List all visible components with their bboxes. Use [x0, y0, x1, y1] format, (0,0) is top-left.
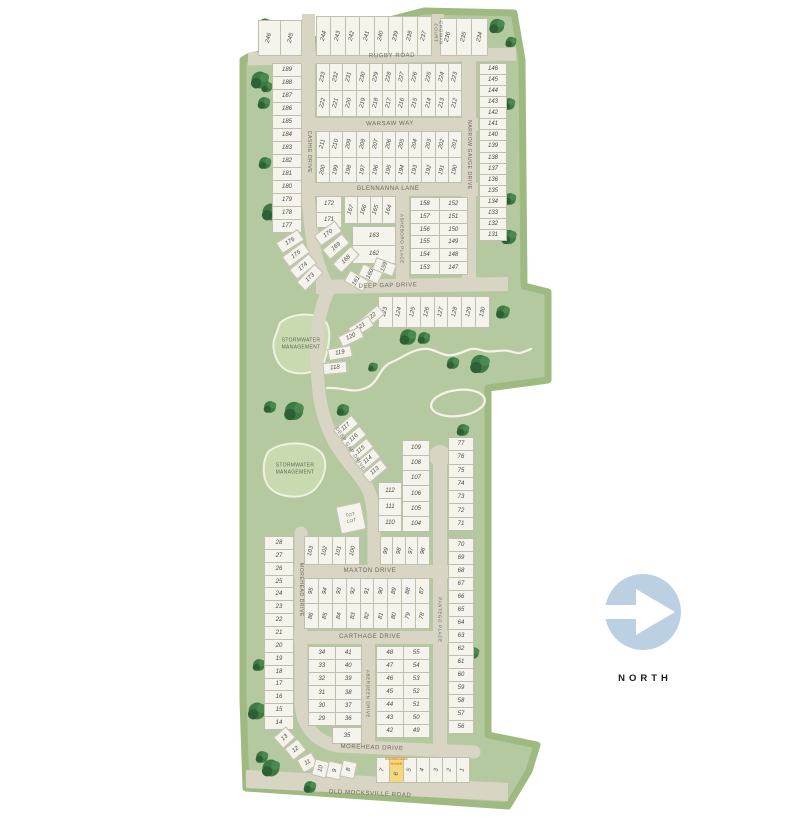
- lot-231: 231: [343, 64, 355, 90]
- lot-61: 61: [449, 656, 473, 668]
- lot-27: 27: [265, 550, 293, 562]
- lot-38: 38: [336, 686, 362, 698]
- block-asheboro_east: 158152157151156150155149154148153147: [410, 197, 468, 275]
- lot-34: 34: [309, 647, 335, 659]
- lot-237: 237: [418, 17, 431, 55]
- street-label-warsaw-way: WARSAW WAY: [366, 121, 414, 128]
- lot-32: 32: [309, 673, 335, 685]
- lot-1: 1: [457, 758, 469, 782]
- lot-141: 141: [480, 119, 506, 129]
- lot-243: 243: [331, 17, 344, 55]
- lot-19: 19: [265, 653, 293, 665]
- north-indicator: NORTH: [593, 562, 693, 684]
- street-label-glennanna-lane: GLENNANNA LANE: [357, 186, 420, 192]
- lot-241: 241: [360, 17, 373, 55]
- lot-84: 84: [333, 604, 346, 628]
- lot-210: 210: [330, 132, 342, 157]
- lot-29: 29: [309, 713, 335, 725]
- lot-87: 87: [416, 579, 429, 603]
- lot-52: 52: [404, 686, 430, 698]
- lot-233: 233: [317, 64, 329, 90]
- lot-62: 62: [449, 643, 473, 655]
- street-label-aberdeen-drive: ABERDEEN DRIVE: [366, 670, 371, 718]
- block-carthage_se: 4855475446534552445143504249: [376, 646, 430, 738]
- stormwater-label-upper: STORMWATER MANAGEMENT: [276, 338, 326, 351]
- block-totlot_col: 112111110: [378, 482, 402, 532]
- lot-71: 71: [449, 518, 473, 530]
- north-arrow-graphic: [593, 562, 693, 662]
- lot-104: 104: [403, 517, 429, 531]
- lot-76: 76: [449, 451, 473, 463]
- lot-54: 54: [404, 660, 430, 672]
- lot-203: 203: [422, 132, 434, 157]
- lot-212: 212: [449, 91, 461, 117]
- lot-82: 82: [361, 604, 374, 628]
- lot-69: 69: [449, 552, 473, 564]
- lot-50: 50: [404, 712, 430, 724]
- lot-108: 108: [403, 456, 429, 470]
- lot-145: 145: [480, 75, 506, 85]
- lot-2: 2: [443, 758, 455, 782]
- lot-149: 149: [440, 236, 468, 248]
- lot-205: 205: [396, 132, 408, 157]
- lot-150: 150: [440, 224, 468, 236]
- lot-78: 78: [416, 604, 429, 628]
- street-label-maxton-drive: MAXTON DRIVE: [344, 568, 397, 574]
- lot-63: 63: [449, 630, 473, 642]
- lot-223: 223: [449, 64, 461, 90]
- lot-211: 211: [317, 132, 329, 157]
- lot-242: 242: [346, 17, 359, 55]
- lot-154: 154: [411, 249, 439, 261]
- street-label-chowan-court: CHOWAN COURT: [433, 17, 444, 49]
- block-maxton_south: 959493929190898887868584838281807978: [304, 578, 430, 629]
- block-maxton_ne: 99989796: [380, 536, 430, 565]
- stormwater-label-lower: STORMWATER MANAGEMENT: [270, 463, 320, 476]
- block-carthage_sw: 344133403239313830372936: [308, 646, 362, 726]
- lot-165: 165: [371, 197, 383, 223]
- lot-68: 68: [449, 565, 473, 577]
- lot-72: 72: [449, 504, 473, 516]
- lot-204: 204: [409, 132, 421, 157]
- lot-102: 102: [319, 537, 332, 564]
- lot-58: 58: [449, 695, 473, 707]
- lot-184: 184: [273, 129, 301, 141]
- lot-163: 163: [353, 227, 395, 245]
- block-maxton_nw: 103102101100: [304, 536, 360, 565]
- lot-67: 67: [449, 578, 473, 590]
- lot-194: 194: [396, 158, 408, 183]
- street-label-narrow-gauge-drive: NARROW GAUGE DRIVE: [466, 120, 472, 190]
- lot-86: 86: [305, 604, 318, 628]
- lot-202: 202: [436, 132, 448, 157]
- lot-56: 56: [449, 721, 473, 733]
- lot-20: 20: [265, 640, 293, 652]
- lot-155: 155: [411, 236, 439, 248]
- lot-218: 218: [370, 91, 382, 117]
- lot-224: 224: [436, 64, 448, 90]
- lot-138: 138: [480, 153, 506, 163]
- lot-164: 164: [383, 197, 395, 223]
- lot-14: 14: [265, 717, 293, 729]
- block-glennanna_c: 163162: [352, 226, 396, 264]
- lot-35: 35: [333, 728, 361, 743]
- lot-151: 151: [440, 211, 468, 223]
- lot-186: 186: [273, 103, 301, 115]
- lot-130: 130: [476, 297, 489, 327]
- lot-103: 103: [305, 537, 318, 564]
- lot-156: 156: [411, 224, 439, 236]
- lot-30: 30: [309, 700, 335, 712]
- lot-40: 40: [336, 660, 362, 672]
- lot-73: 73: [449, 491, 473, 503]
- lot-42: 42: [377, 725, 403, 737]
- tot-lot: TOT LOT: [335, 502, 366, 535]
- lot-135: 135: [480, 186, 506, 196]
- lot-95: 95: [305, 579, 318, 603]
- lot-43: 43: [377, 712, 403, 724]
- lot-24: 24: [265, 588, 293, 600]
- lot-125: 125: [407, 297, 420, 327]
- lot-132: 132: [480, 219, 506, 229]
- block-morehead_west: 282726252423222120191817161514: [264, 536, 294, 730]
- lot-55: 55: [404, 647, 430, 659]
- lot-60: 60: [449, 669, 473, 681]
- lot-187: 187: [273, 90, 301, 102]
- lot-80: 80: [388, 604, 401, 628]
- lot-105: 105: [403, 502, 429, 516]
- lot-18: 18: [265, 666, 293, 678]
- lot-158: 158: [411, 198, 439, 210]
- lot-15: 15: [265, 704, 293, 716]
- lot-4: 4: [417, 758, 429, 782]
- lot-244: 244: [317, 17, 330, 55]
- block-pantego_east: 706968676665646362616059585756: [448, 538, 474, 734]
- lot-28: 28: [265, 537, 293, 549]
- lot-39: 39: [336, 673, 362, 685]
- lot-111: 111: [379, 499, 401, 514]
- site-plan-map: 2462452442432422412402392382372362352341…: [0, 0, 785, 821]
- lot-89: 89: [388, 579, 401, 603]
- lot-198: 198: [343, 158, 355, 183]
- lot-140: 140: [480, 130, 506, 140]
- lot-44: 44: [377, 699, 403, 711]
- lot-88: 88: [402, 579, 415, 603]
- lot-110: 110: [379, 516, 401, 531]
- lot-124: 124: [393, 297, 406, 327]
- lot-118: 118: [323, 361, 348, 375]
- lot-91: 91: [361, 579, 374, 603]
- lot-96: 96: [418, 537, 429, 564]
- lot-129: 129: [462, 297, 475, 327]
- block-pantego_west_upper: 77767574737271: [448, 437, 474, 531]
- lot-3: 3: [430, 758, 442, 782]
- north-label: NORTH: [593, 673, 693, 684]
- street-label-morehead-drive-vertical: MOREHEAD DRIVE: [298, 563, 304, 617]
- block-rugby_south: 2332322312302292282272262252242232222212…: [316, 63, 462, 117]
- lot-136: 136: [480, 175, 506, 185]
- lot-209: 209: [343, 132, 355, 157]
- block-glennanna_b: 167166165164: [344, 196, 396, 224]
- street-label-asheboro-place: ASHEBORO PLACE: [400, 214, 405, 264]
- lot-21: 21: [265, 627, 293, 639]
- lot-199: 199: [330, 158, 342, 183]
- lot-189: 189: [273, 64, 301, 76]
- lot-201: 201: [449, 132, 461, 157]
- lot-66: 66: [449, 591, 473, 603]
- lot-134: 134: [480, 197, 506, 207]
- lot-126: 126: [421, 297, 434, 327]
- lot-178: 178: [273, 207, 301, 219]
- lot-127: 127: [435, 297, 448, 327]
- street-label-cashie-drive: CASHIE DRIVE: [306, 131, 312, 174]
- lot-179: 179: [273, 194, 301, 206]
- block-cashie_west: 189188187186185184183182181180179178177: [272, 63, 302, 233]
- lot-216: 216: [396, 91, 408, 117]
- lot-219: 219: [357, 91, 369, 117]
- lot-85: 85: [319, 604, 332, 628]
- lot-147: 147: [440, 262, 468, 274]
- block-top_mid: 244243242241240239238237: [316, 16, 432, 56]
- lot-206: 206: [383, 132, 395, 157]
- lot-83: 83: [347, 604, 360, 628]
- lot-31: 31: [309, 686, 335, 698]
- lot-214: 214: [422, 91, 434, 117]
- lot-230: 230: [357, 64, 369, 90]
- lot-157: 157: [411, 211, 439, 223]
- lot-47: 47: [377, 660, 403, 672]
- lot-100: 100: [346, 537, 359, 564]
- lot-232: 232: [330, 64, 342, 90]
- lot-92: 92: [347, 579, 360, 603]
- street-label-pantego-place: PANTEGO PLACE: [438, 597, 443, 642]
- lot-221: 221: [330, 91, 342, 117]
- lot-192: 192: [422, 158, 434, 183]
- lot-36: 36: [336, 713, 362, 725]
- lot-226: 226: [409, 64, 421, 90]
- lot-70: 70: [449, 539, 473, 551]
- lot-128: 128: [448, 297, 461, 327]
- block-deepgap_row: 123124125126127128129130: [378, 296, 490, 328]
- lot-183: 183: [273, 142, 301, 154]
- lot-94: 94: [319, 579, 332, 603]
- lot-133: 133: [480, 208, 506, 218]
- lot-75: 75: [449, 465, 473, 477]
- lot-239: 239: [389, 17, 402, 55]
- lot-167: 167: [345, 197, 357, 223]
- lot-112: 112: [379, 483, 401, 498]
- lot-245: 245: [281, 21, 302, 55]
- lot-182: 182: [273, 155, 301, 167]
- lot-180: 180: [273, 181, 301, 193]
- lot-109: 109: [403, 441, 429, 455]
- lot-220: 220: [343, 91, 355, 117]
- lot-26: 26: [265, 563, 293, 575]
- lot-33: 33: [309, 660, 335, 672]
- lot-215: 215: [409, 91, 421, 117]
- lot-25: 25: [265, 576, 293, 588]
- lot-139: 139: [480, 141, 506, 151]
- lot-23: 23: [265, 601, 293, 613]
- lot-240: 240: [375, 17, 388, 55]
- lot-22: 22: [265, 614, 293, 626]
- lot-190: 190: [449, 158, 461, 183]
- lot-228: 228: [383, 64, 395, 90]
- lot-99: 99: [381, 537, 392, 564]
- lot-53: 53: [404, 673, 430, 685]
- lot-119: 119: [327, 345, 353, 361]
- lot-238: 238: [403, 17, 416, 55]
- lot-81: 81: [374, 604, 387, 628]
- lot-65: 65: [449, 604, 473, 616]
- lot-49: 49: [404, 725, 430, 737]
- block-deepgap_col: 109108107106105104: [402, 440, 430, 532]
- lot-137: 137: [480, 164, 506, 174]
- lot-48: 48: [377, 647, 403, 659]
- lot-51: 51: [404, 699, 430, 711]
- lot-197: 197: [357, 158, 369, 183]
- lot-146: 146: [480, 64, 506, 74]
- street-label-rugby-road: RUGBY ROAD: [369, 53, 415, 60]
- lot-144: 144: [480, 86, 506, 96]
- lot-172: 172: [317, 197, 341, 212]
- lot-207: 207: [370, 132, 382, 157]
- lot-37: 37: [336, 700, 362, 712]
- lot-153: 153: [411, 262, 439, 274]
- lot-229: 229: [370, 64, 382, 90]
- lot-8: 8: [339, 759, 357, 779]
- lot-152: 152: [440, 198, 468, 210]
- lot-120: 120: [338, 326, 365, 347]
- lot-208: 208: [357, 132, 369, 157]
- lot-131: 131: [480, 230, 506, 240]
- lot-142: 142: [480, 108, 506, 118]
- lot-200: 200: [317, 158, 329, 183]
- showcase-home-label: SHOWCASE HOME: [383, 757, 410, 767]
- lot-74: 74: [449, 478, 473, 490]
- lot-181: 181: [273, 168, 301, 180]
- lot-97: 97: [406, 537, 417, 564]
- lot-234: 234: [472, 19, 487, 55]
- lot-166: 166: [358, 197, 370, 223]
- lot-79: 79: [402, 604, 415, 628]
- block-top_left: 246245: [258, 20, 302, 56]
- street-label-carthage-drive: CARTHAGE DRIVE: [339, 634, 401, 640]
- lot-64: 64: [449, 617, 473, 629]
- lot-191: 191: [436, 158, 448, 183]
- lot-45: 45: [377, 686, 403, 698]
- block-top_right: 236235234: [440, 18, 488, 56]
- lot-77: 77: [449, 438, 473, 450]
- lot-222: 222: [317, 91, 329, 117]
- lot-57: 57: [449, 708, 473, 720]
- lot-196: 196: [370, 158, 382, 183]
- lot-46: 46: [377, 673, 403, 685]
- lot-107: 107: [403, 471, 429, 485]
- lot-90: 90: [374, 579, 387, 603]
- block-lot35: 35: [332, 727, 362, 744]
- lot-41: 41: [336, 647, 362, 659]
- lot-235: 235: [457, 19, 472, 55]
- tot-lot-label: TOT LOT: [343, 511, 359, 525]
- lot-101: 101: [333, 537, 346, 564]
- block-warsaw_south: 2112102092082072062052042032022012001991…: [316, 131, 462, 183]
- lot-193: 193: [409, 158, 421, 183]
- lot-59: 59: [449, 682, 473, 694]
- lot-217: 217: [383, 91, 395, 117]
- lot-195: 195: [383, 158, 395, 183]
- lot-16: 16: [265, 691, 293, 703]
- lot-17: 17: [265, 679, 293, 691]
- lot-213: 213: [436, 91, 448, 117]
- lot-106: 106: [403, 486, 429, 500]
- lot-246: 246: [259, 21, 280, 55]
- lot-227: 227: [396, 64, 408, 90]
- lot-148: 148: [440, 249, 468, 261]
- block-narrow_gauge_east: 1461451441431421411401391381371361351341…: [479, 63, 507, 241]
- lot-143: 143: [480, 97, 506, 107]
- lot-225: 225: [422, 64, 434, 90]
- lot-188: 188: [273, 77, 301, 89]
- lot-185: 185: [273, 116, 301, 128]
- lot-93: 93: [333, 579, 346, 603]
- lot-98: 98: [393, 537, 404, 564]
